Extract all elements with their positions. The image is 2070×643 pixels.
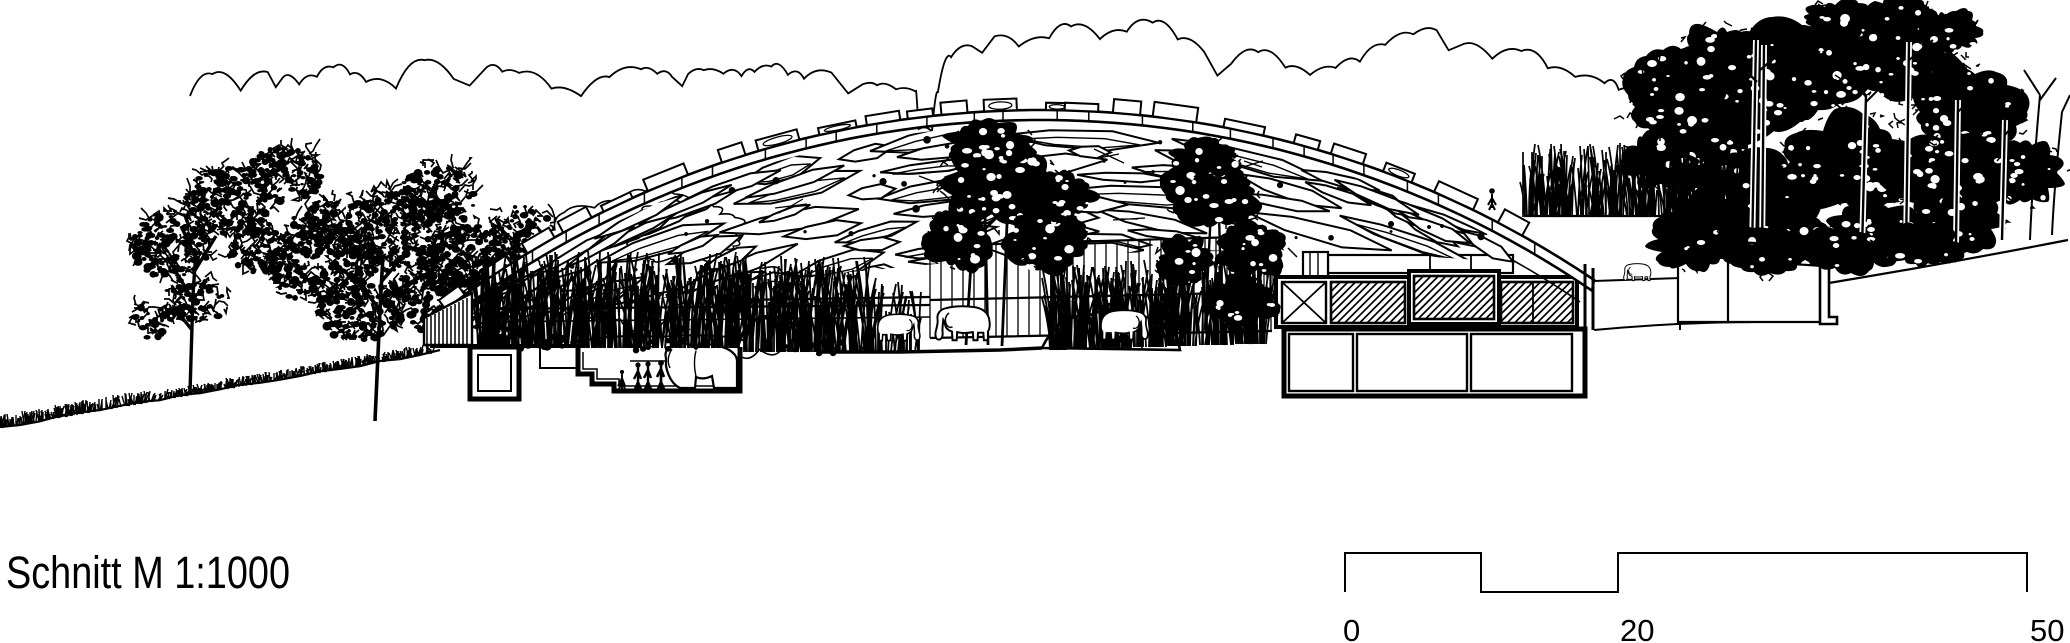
svg-text:Schnitt M 1:1000: Schnitt M 1:1000 — [6, 547, 290, 598]
svg-text:0: 0 — [1343, 613, 1360, 643]
svg-text:50: 50 — [2030, 613, 2064, 643]
svg-text:20: 20 — [1620, 613, 1654, 643]
